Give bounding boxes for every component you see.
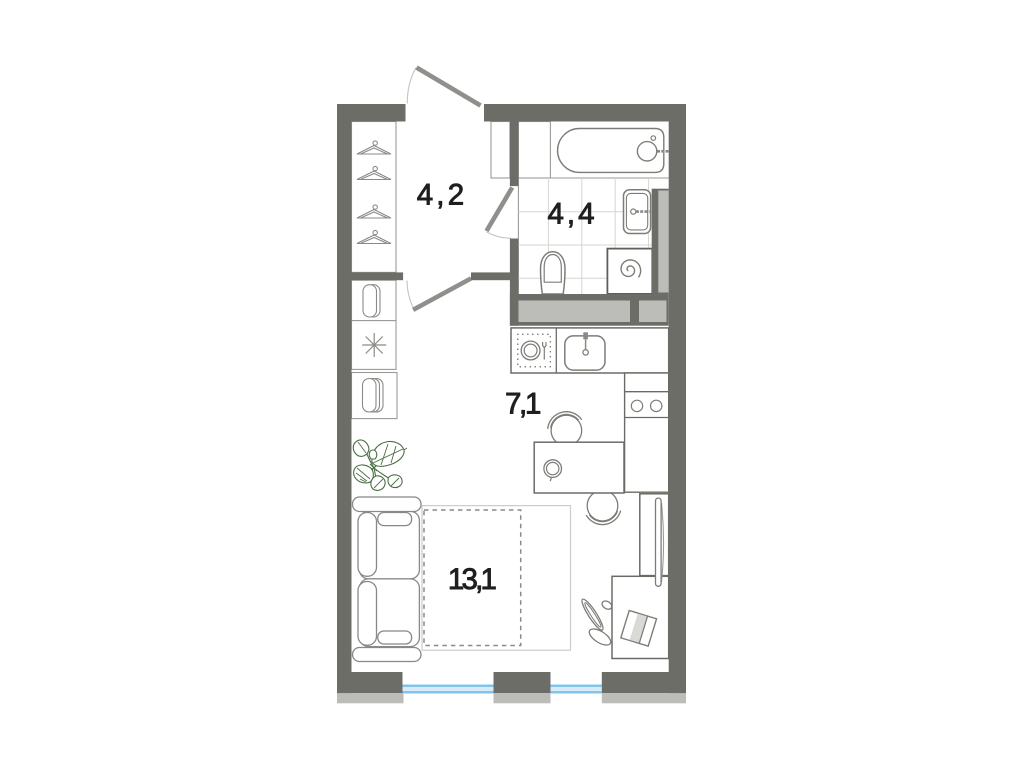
svg-text:13,1: 13,1 [448, 563, 496, 596]
svg-text:4,4: 4,4 [547, 197, 597, 230]
svg-text:4,2: 4,2 [417, 179, 468, 212]
svg-text:7,1: 7,1 [505, 388, 540, 421]
